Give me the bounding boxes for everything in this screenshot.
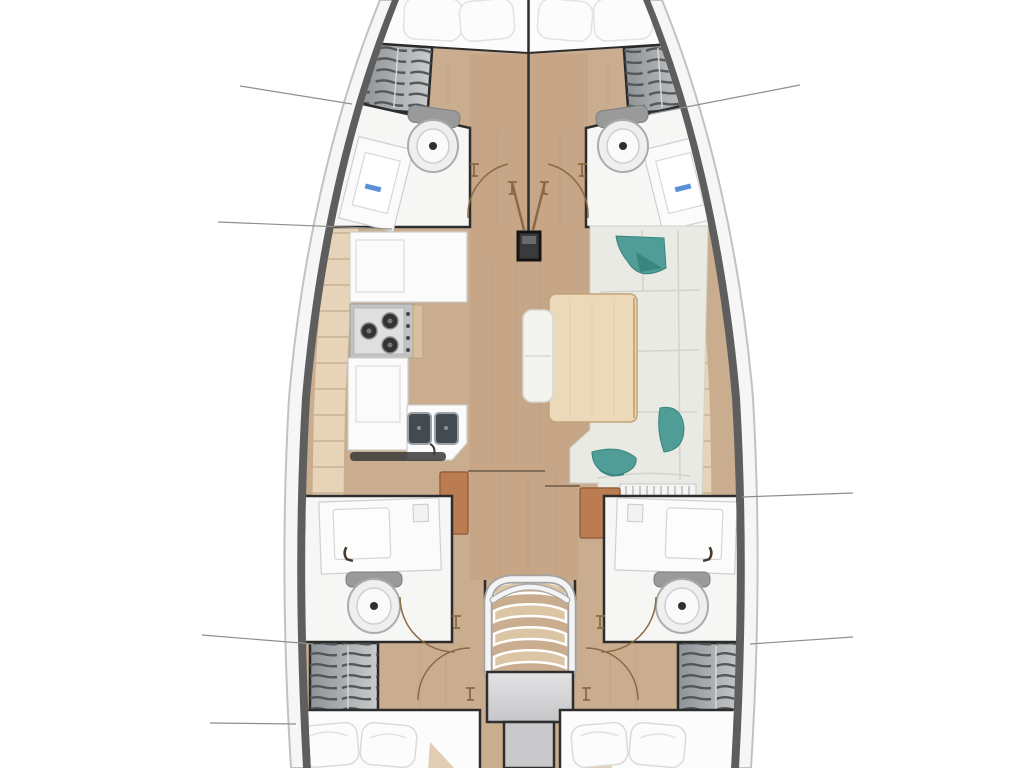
stove (350, 304, 423, 358)
aft-berth-starboard (560, 710, 740, 768)
aft-head-starboard (604, 496, 756, 642)
aft-head-port (300, 496, 452, 642)
salon-table (549, 294, 637, 422)
toilet-forward-starboard (595, 104, 649, 172)
mast-post (518, 232, 540, 260)
toilet-aft-starboard (654, 572, 710, 633)
yacht-floorplan (0, 0, 1024, 768)
sink-aft-starboard (615, 498, 737, 574)
engine-column (504, 722, 554, 768)
forward-berths (280, 0, 760, 53)
toilet-aft-port (346, 572, 402, 633)
galley-footrail-shadow (350, 452, 446, 461)
yacht-floorplan-canvas (0, 0, 1024, 768)
forward-berth-cushion (280, 0, 760, 53)
toilet-forward-port (407, 104, 461, 172)
salon-bench (523, 310, 553, 402)
aft-berth-port (294, 710, 480, 768)
galley-counter-lower (348, 358, 408, 450)
sink-aft-port (319, 498, 441, 574)
